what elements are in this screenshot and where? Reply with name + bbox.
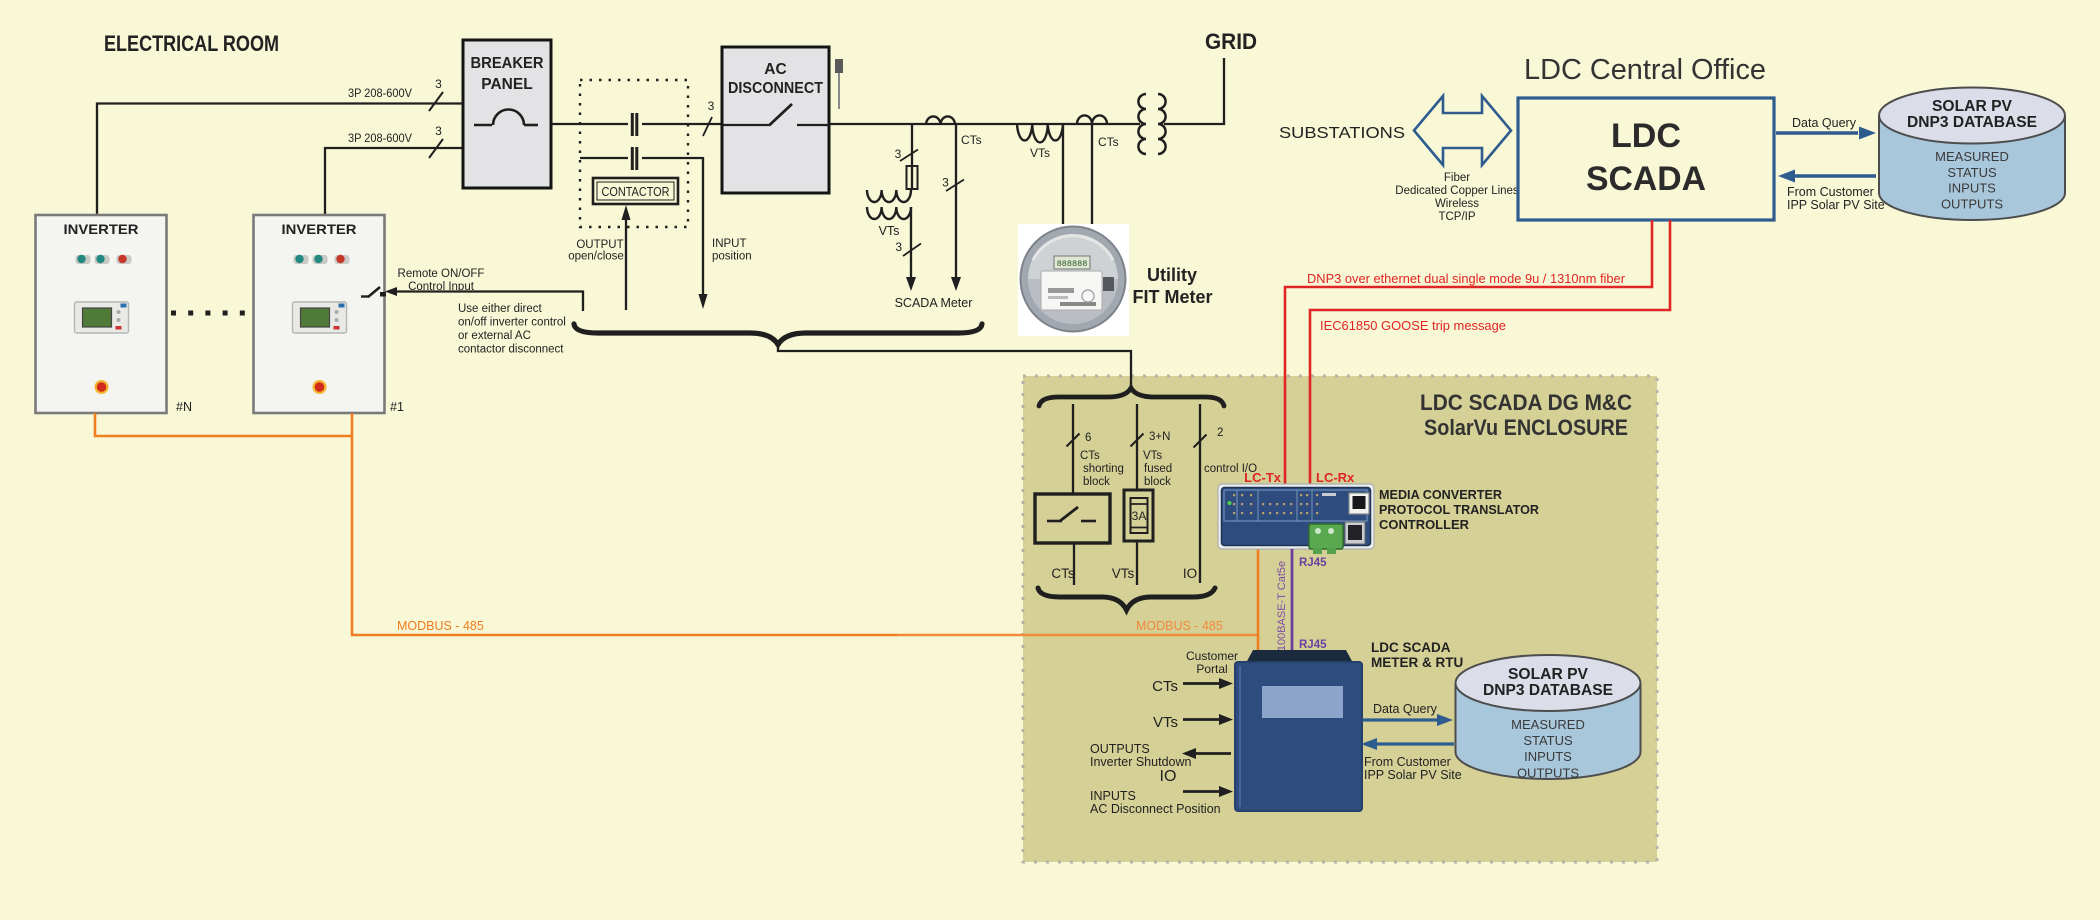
svg-text:Fiber: Fiber [1444,172,1470,184]
svg-text:3: 3 [435,77,442,91]
svg-text:LDC SCADA DG M&C: LDC SCADA DG M&C [1420,390,1632,415]
svg-text:IEC61850 GOOSE trip message: IEC61850 GOOSE trip message [1320,318,1506,333]
svg-text:MEDIA CONVERTER: MEDIA CONVERTER [1379,487,1503,502]
svg-text:DNP3 over ethernet dual single: DNP3 over ethernet dual single mode 9u /… [1307,271,1626,286]
svg-text:From Customer: From Customer [1364,755,1451,769]
svg-text:BREAKER: BREAKER [471,55,544,72]
svg-text:Control Input: Control Input [408,281,475,293]
svg-text:Customer: Customer [1186,649,1238,663]
svg-text:3A: 3A [1132,509,1147,523]
svg-text:Remote ON/OFF: Remote ON/OFF [398,268,485,280]
svg-text:Use either direct: Use either direct [458,303,543,315]
svg-text:3P 208-600V: 3P 208-600V [348,133,412,145]
svg-text:shorting: shorting [1083,463,1124,475]
svg-text:#N: #N [176,400,192,414]
svg-text:VTs: VTs [1153,714,1178,731]
svg-text:3: 3 [895,240,902,254]
svg-text:From Customer: From Customer [1787,185,1874,199]
svg-text:Portal: Portal [1196,662,1227,676]
svg-text:position: position [712,251,752,263]
svg-text:INVERTER: INVERTER [64,221,139,237]
svg-text:STATUS: STATUS [1947,165,1997,180]
svg-text:Dedicated Copper Lines: Dedicated Copper Lines [1395,185,1519,197]
svg-text:SOLAR PV: SOLAR PV [1508,666,1588,683]
svg-text:block: block [1083,476,1110,488]
svg-text:3: 3 [708,99,715,113]
svg-text:fused: fused [1144,463,1172,475]
svg-text:INVERTER: INVERTER [282,221,357,237]
svg-text:INPUTS: INPUTS [1948,181,1996,196]
svg-text:IO: IO [1183,566,1197,581]
svg-text:VTs: VTs [1143,450,1162,462]
svg-text:2: 2 [1217,427,1223,439]
svg-text:PROTOCOL TRANSLATOR: PROTOCOL TRANSLATOR [1379,502,1540,517]
svg-text:FIT Meter: FIT Meter [1133,287,1213,307]
svg-text:888888: 888888 [1057,259,1088,269]
svg-text:PANEL: PANEL [481,76,532,93]
svg-text:CTs: CTs [1152,678,1178,695]
svg-text:Inverter Shutdown: Inverter Shutdown [1090,755,1191,769]
svg-text:SCADA: SCADA [1586,160,1706,198]
svg-text:SCADA Meter: SCADA Meter [895,296,973,310]
svg-text:TCP/IP: TCP/IP [1438,211,1475,223]
svg-text:3: 3 [435,124,442,138]
svg-text:SolarVu ENCLOSURE: SolarVu ENCLOSURE [1424,415,1628,440]
svg-text:6: 6 [1085,432,1091,444]
svg-text:STATUS: STATUS [1523,733,1573,748]
svg-text:SUBSTATIONS: SUBSTATIONS [1279,125,1405,142]
svg-text:open/close: open/close [568,251,624,263]
svg-text:VTs: VTs [1112,566,1135,581]
svg-text:100BASE-T Cat5e: 100BASE-T Cat5e [1276,561,1288,651]
svg-text:3+N: 3+N [1149,431,1170,443]
svg-text:Data Query: Data Query [1373,702,1438,716]
svg-text:AC: AC [764,61,786,78]
svg-text:or external AC: or external AC [458,330,531,342]
svg-text:block: block [1144,476,1171,488]
svg-text:contactor disconnect: contactor disconnect [458,344,564,356]
svg-text:on/off inverter control: on/off inverter control [458,317,566,329]
svg-text:GRID: GRID [1205,29,1257,54]
svg-text:MODBUS - 485: MODBUS - 485 [397,619,484,633]
svg-text:CTs: CTs [1098,135,1119,149]
svg-text:OUTPUTS: OUTPUTS [1941,196,2003,211]
svg-text:IPP Solar PV Site: IPP Solar PV Site [1787,198,1885,212]
svg-text:CONTACTOR: CONTACTOR [602,185,670,199]
svg-text:AC Disconnect Position: AC Disconnect Position [1090,802,1221,816]
svg-text:LDC SCADA: LDC SCADA [1371,640,1451,655]
svg-text:SOLAR PV: SOLAR PV [1932,98,2012,115]
svg-text:DNP3 DATABASE: DNP3 DATABASE [1907,114,2037,131]
svg-text:IPP Solar PV Site: IPP Solar PV Site [1364,768,1462,782]
svg-text:DISCONNECT: DISCONNECT [728,80,823,97]
svg-text:CTs: CTs [961,133,982,147]
svg-text:INPUTS: INPUTS [1524,749,1572,764]
svg-text:Data Query: Data Query [1792,116,1857,130]
svg-text:CTs: CTs [1080,450,1100,462]
svg-text:OUTPUTS: OUTPUTS [1517,766,1579,781]
svg-text:CTs: CTs [1051,566,1074,581]
svg-text:DNP3 DATABASE: DNP3 DATABASE [1483,682,1613,699]
svg-text:MEASURED: MEASURED [1511,717,1585,732]
svg-text:IO: IO [1160,768,1177,785]
svg-text:3: 3 [895,147,902,161]
svg-text:MODBUS - 485: MODBUS - 485 [1136,619,1223,633]
svg-text:ELECTRICAL ROOM: ELECTRICAL ROOM [104,31,279,56]
svg-text:INPUT: INPUT [712,238,747,250]
svg-text:OUTPUTS: OUTPUTS [1090,742,1150,756]
svg-text:MEASURED: MEASURED [1935,149,2009,164]
svg-text:LDC Central Office: LDC Central Office [1524,54,1766,86]
svg-text:VTs: VTs [879,224,900,238]
svg-text:INPUTS: INPUTS [1090,789,1136,803]
svg-text:Utility: Utility [1147,265,1197,285]
svg-text:Wireless: Wireless [1435,198,1479,210]
svg-text:CONTROLLER: CONTROLLER [1379,517,1470,532]
svg-text:3: 3 [942,176,949,190]
svg-text:OUTPUT: OUTPUT [576,239,623,251]
svg-text:METER & RTU: METER & RTU [1371,655,1463,670]
svg-text:VTs: VTs [1030,146,1050,160]
svg-text:RJ45: RJ45 [1299,639,1327,651]
svg-text:3P 208-600V: 3P 208-600V [348,88,412,100]
svg-text:LDC: LDC [1611,117,1681,155]
svg-text:#1: #1 [390,400,404,414]
svg-text:RJ45: RJ45 [1299,557,1327,569]
svg-text:control I/O: control I/O [1204,463,1257,475]
svg-text:LC-Rx: LC-Rx [1316,470,1355,485]
